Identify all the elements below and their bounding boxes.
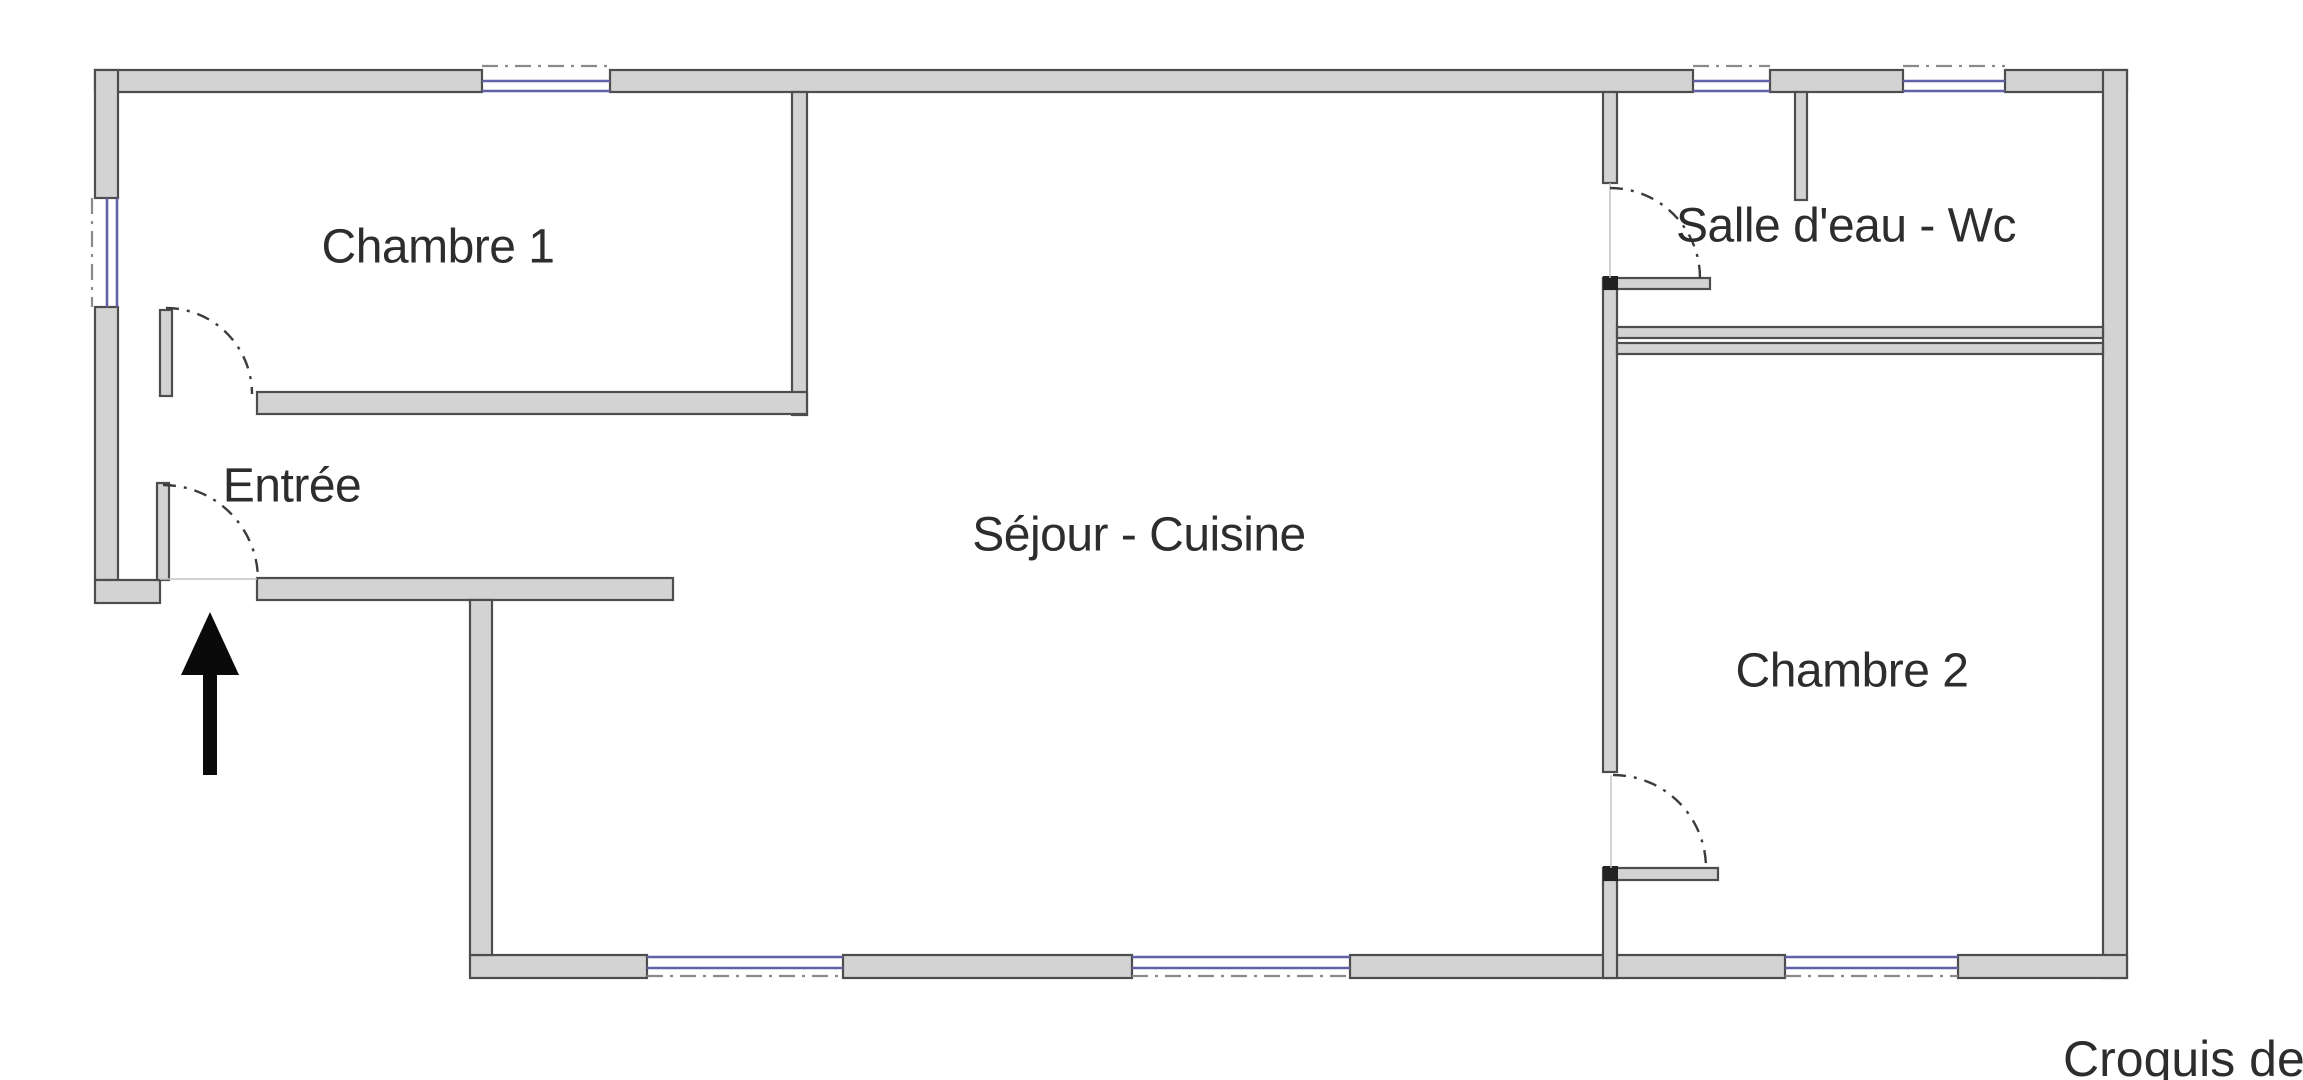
wall-south-b <box>843 955 1132 978</box>
room-label-sejour-cuisine: Séjour - Cuisine <box>972 508 1305 563</box>
wall-top-b <box>610 70 1693 92</box>
wall-sde-doorstop <box>1603 278 1710 289</box>
wall-chambre1-bottom <box>257 392 807 414</box>
wall-divider-lower <box>1603 868 1617 978</box>
wall-top-c <box>1770 70 1903 92</box>
wall-south-d <box>1958 955 2127 978</box>
door-leaf-chambre1 <box>160 310 172 396</box>
room-label-chambre-2: Chambre 2 <box>1736 644 1969 699</box>
wall-left-lower <box>95 307 118 580</box>
wall-chambre1-right <box>792 92 807 415</box>
wall-divider-upper <box>1603 92 1617 183</box>
wall-south-c <box>1350 955 1785 978</box>
wall-top-a <box>95 70 482 92</box>
cap-ch2-doorstop <box>1603 866 1618 881</box>
wall-entree-south <box>257 578 673 600</box>
door-arc-chambre1 <box>166 308 252 394</box>
wall-step <box>470 600 492 955</box>
wall-ch2-top <box>1617 343 2103 354</box>
wall-divider-middle <box>1603 278 1617 772</box>
wall-south-a <box>470 955 647 978</box>
room-label-entree: Entrée <box>223 459 361 514</box>
entrance-arrow-icon <box>181 612 239 675</box>
wall-right <box>2103 70 2127 978</box>
room-label-salle-eau-wc: Salle d'eau - Wc <box>1676 199 2016 254</box>
room-label-chambre-1: Chambre 1 <box>322 220 555 275</box>
caption-croquis: Croquis de si <box>2063 1030 2303 1080</box>
door-leaf-entree <box>157 483 169 580</box>
wall-left-upper <box>95 70 118 198</box>
wall-ch2-doorstop <box>1605 868 1718 880</box>
floor-plan-page: Chambre 1 Entrée Séjour - Cuisine Salle … <box>0 0 2303 1080</box>
cap-sde-doorstop <box>1603 276 1618 290</box>
wall-left-foot <box>95 580 160 603</box>
entrance-arrow-icon <box>203 673 217 775</box>
door-arc-chambre2 <box>1613 775 1706 868</box>
wall-sde-stub <box>1795 92 1807 200</box>
wall-sde-bottom <box>1617 327 2103 338</box>
